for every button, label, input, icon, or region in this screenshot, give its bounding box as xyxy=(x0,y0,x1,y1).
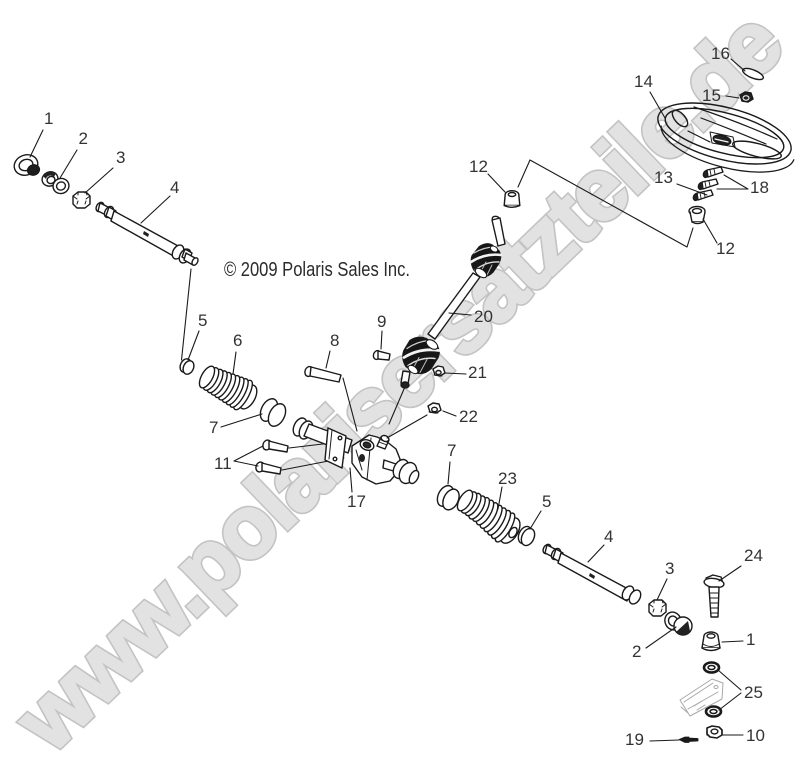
svg-text:3: 3 xyxy=(665,559,674,578)
svg-text:8: 8 xyxy=(330,331,339,350)
svg-text:2: 2 xyxy=(632,642,641,661)
svg-text:3: 3 xyxy=(116,148,125,167)
svg-text:1: 1 xyxy=(746,630,755,649)
svg-text:23: 23 xyxy=(498,469,517,488)
svg-text:11: 11 xyxy=(214,454,232,473)
svg-text:15: 15 xyxy=(702,86,721,105)
svg-text:22: 22 xyxy=(459,407,478,426)
svg-text:© 2009 Polaris Sales Inc.: © 2009 Polaris Sales Inc. xyxy=(224,258,410,281)
svg-text:4: 4 xyxy=(170,178,179,197)
svg-text:1: 1 xyxy=(44,109,53,128)
svg-text:www.polarisersatzteile.de: www.polarisersatzteile.de xyxy=(0,0,799,764)
svg-text:5: 5 xyxy=(198,311,207,330)
svg-text:17: 17 xyxy=(347,492,366,511)
svg-text:12: 12 xyxy=(469,157,488,176)
svg-text:10: 10 xyxy=(746,726,765,745)
svg-text:4: 4 xyxy=(604,527,613,546)
svg-text:13: 13 xyxy=(654,168,673,187)
svg-text:18: 18 xyxy=(750,178,769,197)
svg-text:24: 24 xyxy=(744,546,763,565)
svg-text:14: 14 xyxy=(634,72,653,91)
svg-text:25: 25 xyxy=(744,683,763,702)
svg-text:19: 19 xyxy=(625,730,644,749)
svg-text:12: 12 xyxy=(716,239,735,258)
svg-text:21: 21 xyxy=(468,363,487,382)
svg-text:5: 5 xyxy=(542,492,551,511)
svg-text:9: 9 xyxy=(377,312,386,331)
svg-text:7: 7 xyxy=(209,418,218,437)
svg-text:6: 6 xyxy=(233,331,242,350)
svg-text:7: 7 xyxy=(447,441,456,460)
svg-text:16: 16 xyxy=(711,44,730,63)
svg-text:20: 20 xyxy=(474,307,493,326)
svg-text:2: 2 xyxy=(79,129,88,148)
